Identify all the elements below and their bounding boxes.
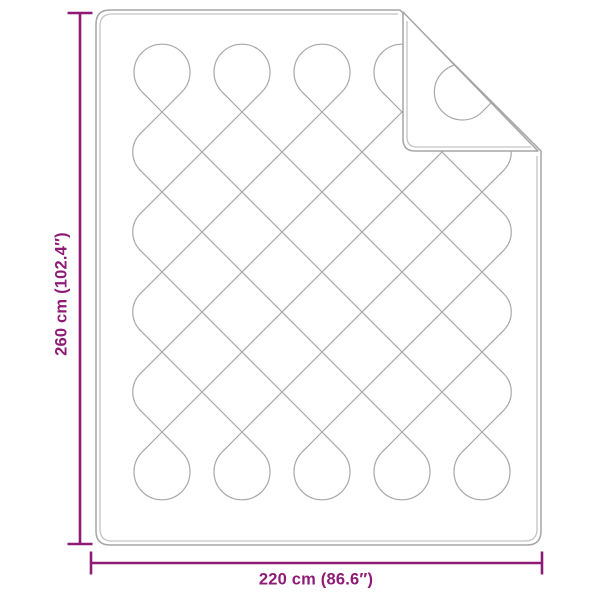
blanket-dimension-diagram: 260 cm (102.4″) 220 cm (86.6″) (0, 0, 600, 600)
width-dimension-label: 220 cm (86.6″) (259, 571, 373, 590)
blanket-illustration (0, 0, 600, 600)
folded-corner-flap (403, 12, 538, 151)
height-dimension-label: 260 cm (102.4″) (53, 232, 72, 356)
